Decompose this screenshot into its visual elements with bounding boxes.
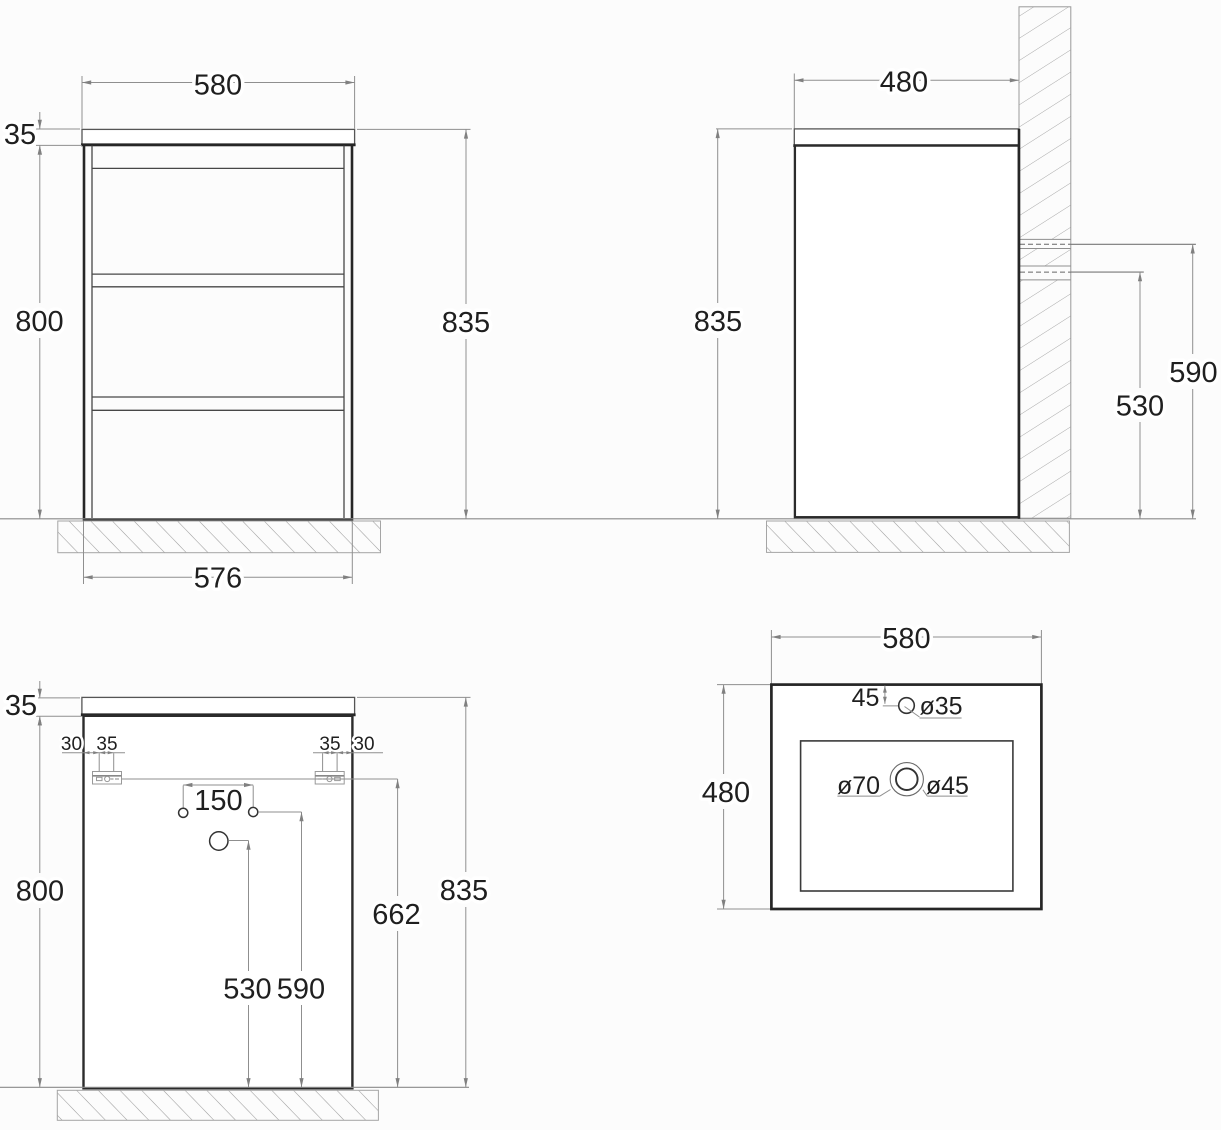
svg-text:30: 30: [61, 734, 82, 755]
svg-text:580: 580: [194, 69, 242, 101]
svg-text:480: 480: [880, 66, 928, 98]
svg-text:480: 480: [702, 777, 750, 809]
svg-text:580: 580: [882, 623, 930, 655]
svg-text:150: 150: [194, 785, 242, 817]
svg-text:835: 835: [440, 875, 488, 907]
svg-text:ø35: ø35: [919, 693, 962, 721]
svg-text:35: 35: [5, 690, 37, 722]
svg-text:590: 590: [1169, 357, 1217, 389]
svg-text:800: 800: [15, 306, 63, 338]
svg-text:530: 530: [223, 973, 271, 1005]
svg-text:530: 530: [1116, 390, 1164, 422]
svg-text:835: 835: [694, 306, 742, 338]
svg-text:35: 35: [96, 734, 117, 755]
svg-text:30: 30: [353, 734, 374, 755]
svg-text:576: 576: [194, 562, 242, 594]
svg-text:35: 35: [319, 734, 340, 755]
svg-text:800: 800: [16, 875, 64, 907]
svg-text:45: 45: [852, 684, 880, 712]
svg-text:662: 662: [372, 899, 420, 931]
svg-text:590: 590: [277, 973, 325, 1005]
svg-text:35: 35: [4, 119, 36, 151]
svg-text:835: 835: [442, 307, 490, 339]
